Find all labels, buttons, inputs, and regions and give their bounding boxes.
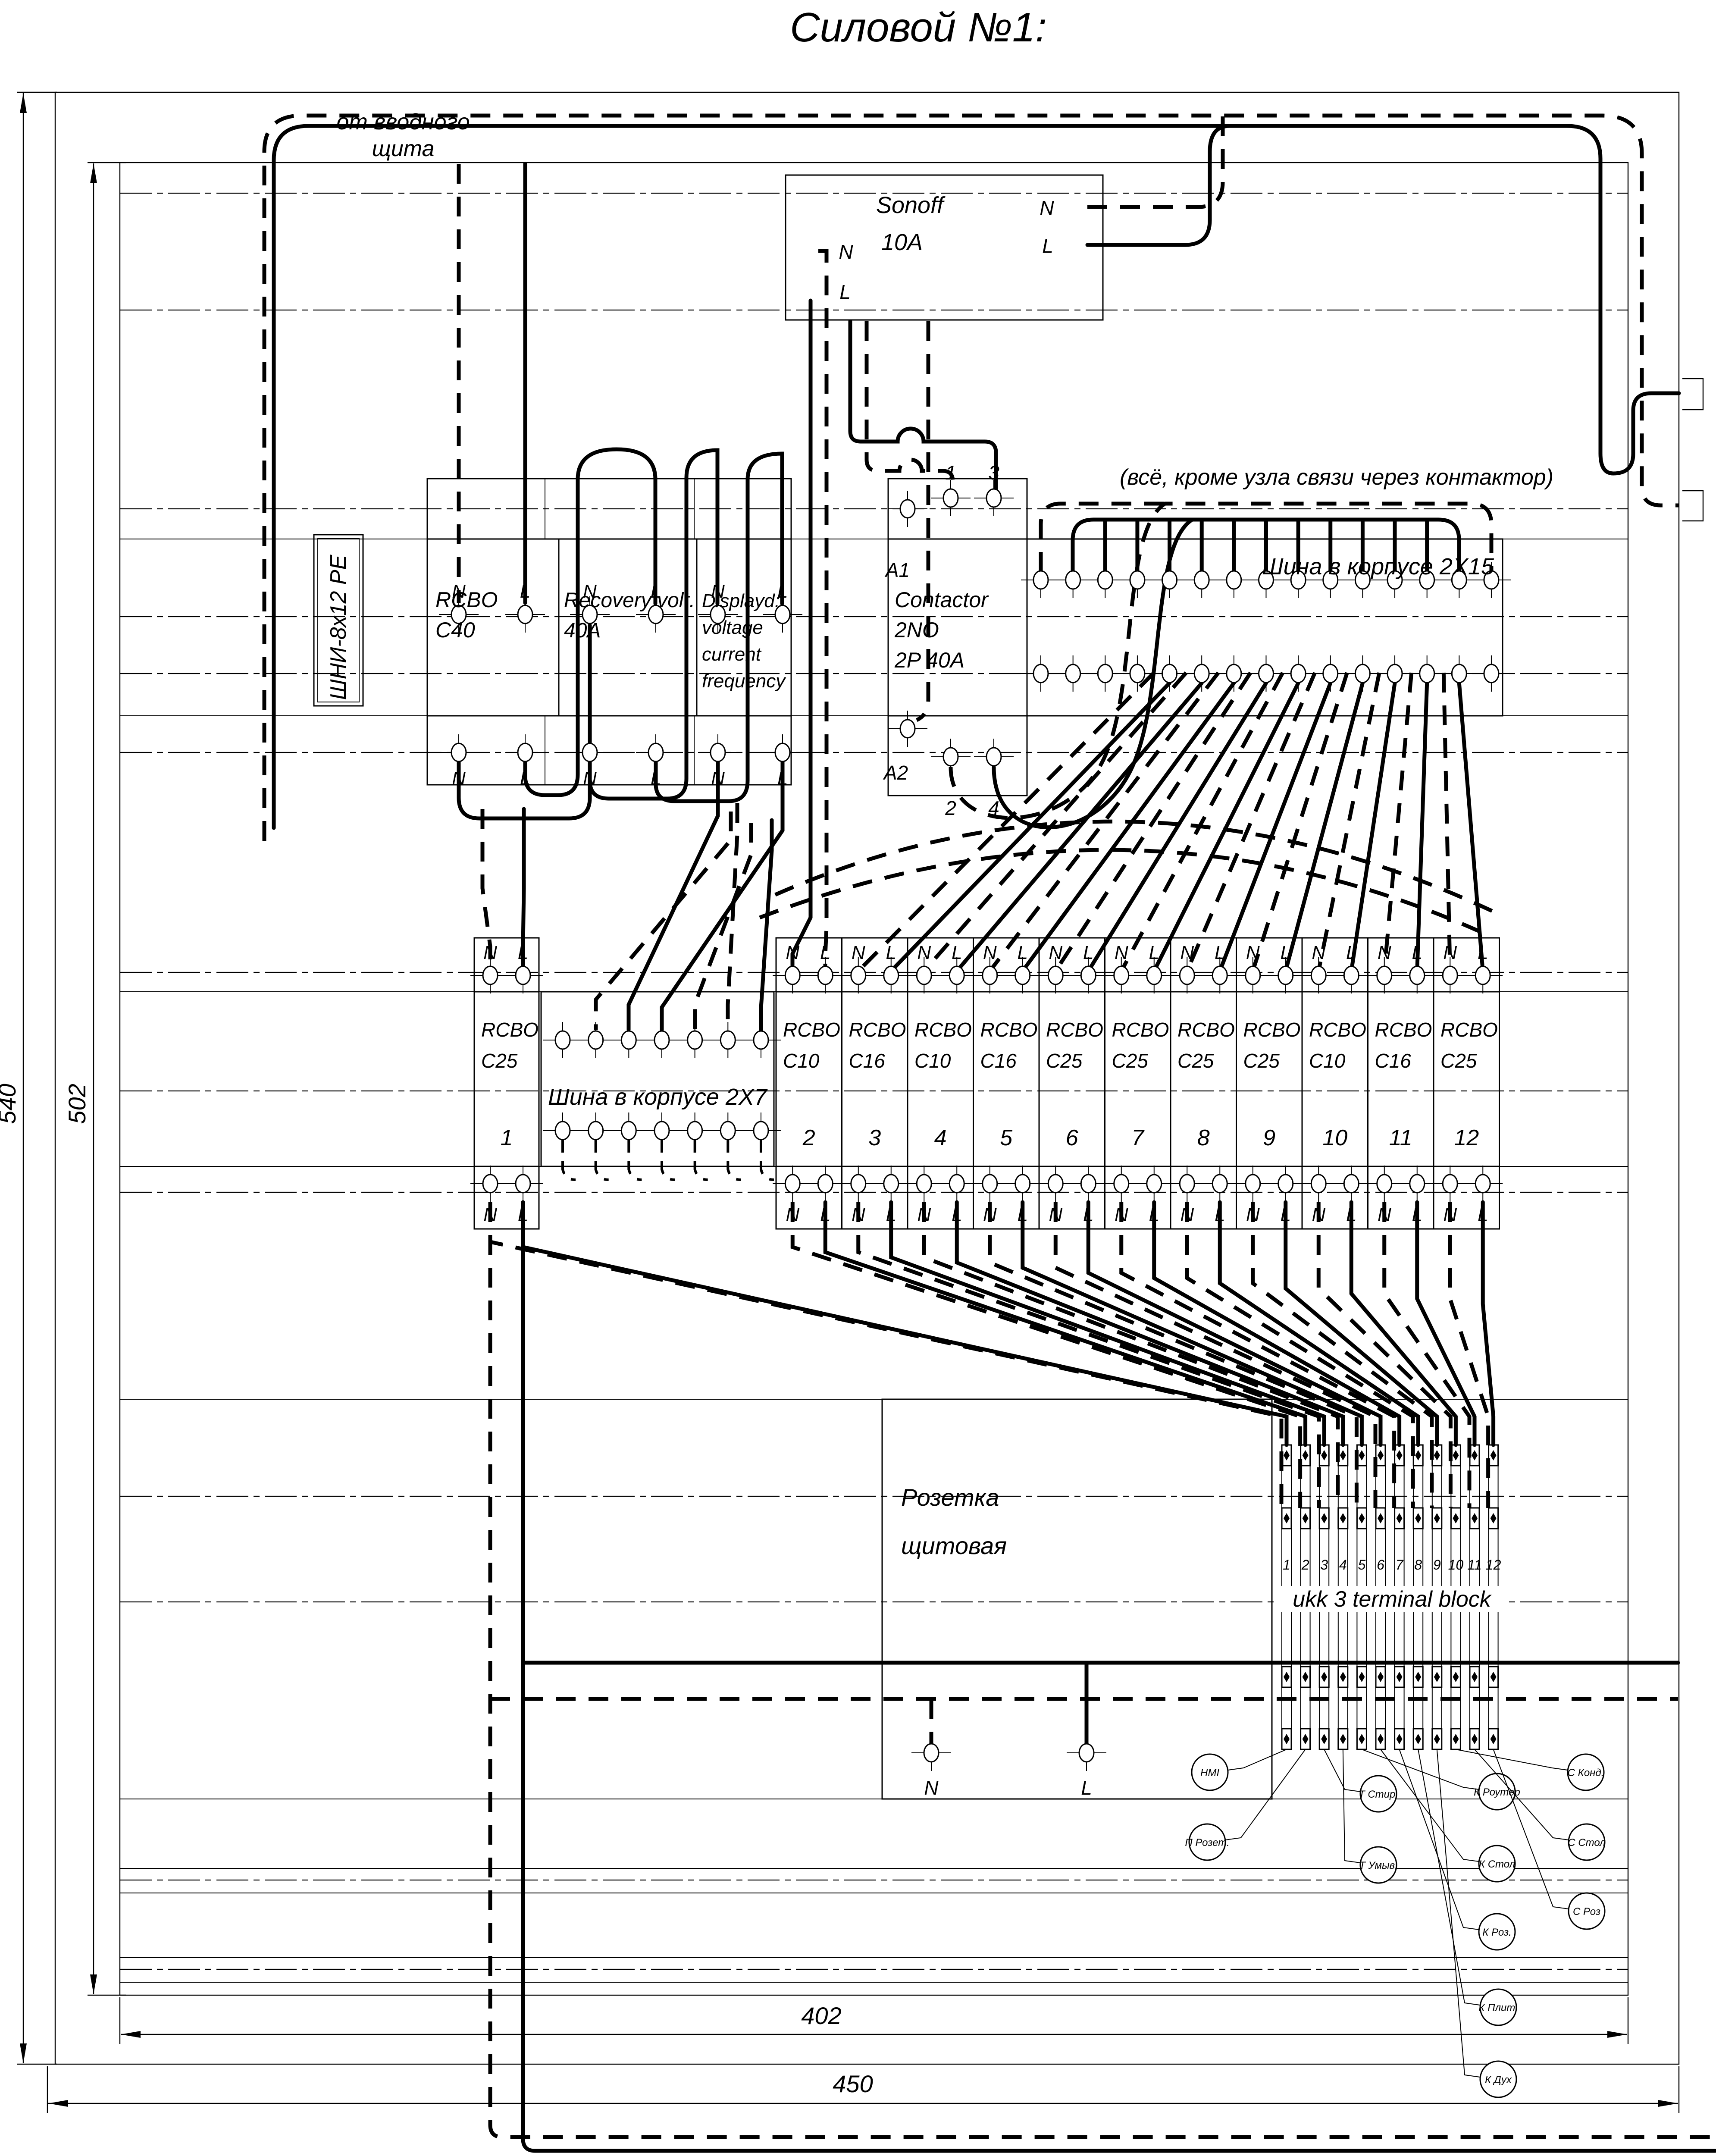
terminal-screw [983, 1175, 997, 1193]
terminal-diamond [1303, 1734, 1309, 1744]
breaker-terminal-letter: N [983, 942, 997, 963]
terminal-screw [986, 748, 1001, 766]
breaker-terminal-letter: N [483, 942, 497, 963]
terminal-screw [654, 1031, 669, 1049]
terminal-screw [917, 966, 931, 984]
breaker-terminal-letter: L [1281, 942, 1291, 963]
breaker-number: 2 [802, 1125, 815, 1150]
terminal-screw [1227, 571, 1241, 589]
contactor-line1: Contactor [895, 588, 989, 612]
terminal-screw [1410, 966, 1425, 984]
bus-2x15-label: Шина в корпусе 2X15 [1262, 554, 1494, 580]
circuit-tag-label: К Роутер [1474, 1786, 1520, 1798]
breaker-terminal-letter: N [1312, 942, 1325, 963]
breaker-rating-line1: RCBO [914, 1018, 972, 1041]
breaker-terminal-letter: N [786, 942, 799, 963]
socket-box-group [882, 1399, 1272, 1799]
circuit-tag-label: Т Стир. [1359, 1789, 1398, 1800]
terminal-diamond [1321, 1672, 1327, 1682]
breaker-rating-line2: C25 [1046, 1050, 1083, 1072]
breaker-terminal-letter: N [983, 1204, 997, 1225]
socket-label-1: Розетка [901, 1484, 999, 1511]
terminal-screw [555, 1031, 570, 1049]
ukk-number: 8 [1414, 1557, 1422, 1573]
terminal-diamond [1415, 1450, 1421, 1460]
terminal-diamond [1303, 1513, 1309, 1523]
breaker-terminal-letter: L [1346, 942, 1356, 963]
terminal-screw [775, 743, 790, 761]
terminal-diamond [1340, 1734, 1346, 1744]
circuit-tag-label: С Роз [1573, 1906, 1600, 1918]
terminal-screw [1278, 1175, 1293, 1193]
breaker-number: 9 [1263, 1125, 1275, 1150]
terminal-screw [654, 1122, 669, 1140]
breaker-terminal-letter: L [1412, 1204, 1422, 1225]
terminal-diamond [1378, 1513, 1384, 1523]
breaker-terminal-letter: L [820, 942, 830, 963]
terminal-screw [1355, 664, 1370, 683]
contactor-line3: 2P 40A [894, 648, 964, 672]
terminal-diamond [1284, 1734, 1290, 1744]
terminal-diamond [1303, 1450, 1309, 1460]
breaker-number: 8 [1197, 1125, 1210, 1150]
breaker-terminal-letter: L [952, 942, 962, 963]
terminal-screw [1344, 966, 1359, 984]
terminal-screw [1180, 966, 1194, 984]
terminal-diamond [1453, 1513, 1459, 1523]
ukk-number: 5 [1358, 1557, 1366, 1573]
socket-label-2: щитовая [901, 1532, 1007, 1559]
breaker-rating-line2: C16 [980, 1050, 1017, 1072]
breaker-terminal-letter: L [1281, 1204, 1291, 1225]
circuit-leader-line [1456, 1749, 1568, 1770]
breaker-terminal-letter: N [1246, 942, 1260, 963]
terminal-screw [1484, 664, 1499, 683]
recovery-line1: Recovery volt. [564, 589, 695, 612]
terminal-screw [1048, 966, 1063, 984]
terminal-screw [1377, 1175, 1392, 1193]
breaker-rating-line2: C25 [1440, 1050, 1477, 1072]
terminal-diamond [1491, 1513, 1497, 1523]
terminal-screw [943, 748, 958, 766]
contactor-4: 4 [988, 797, 999, 819]
terminal-screw [1443, 966, 1457, 984]
terminal-diamond [1434, 1672, 1440, 1682]
breaker-terminal-letter: N [1312, 1204, 1325, 1225]
socket-l: L [1081, 1777, 1092, 1799]
sonoff-n-left: N [839, 241, 853, 263]
terminal-diamond [1340, 1513, 1346, 1523]
row1-terminal-letter: N [583, 768, 597, 789]
terminal-screw [851, 1175, 866, 1193]
bus-2x7-label: Шина в корпусе 2X7 [548, 1084, 768, 1110]
terminal-diamond [1434, 1513, 1440, 1523]
wiring-diagram-svg: 540 502 402 450 [0, 0, 1716, 2156]
page-title: Силовой №1: [790, 4, 1047, 50]
terminal-diamond [1415, 1734, 1421, 1744]
breaker-rating-line2: C16 [1375, 1050, 1412, 1072]
sonoff-rating: 10A [881, 229, 923, 255]
breaker-terminal-letter: N [786, 1204, 799, 1225]
terminal-diamond [1491, 1672, 1497, 1682]
terminal-screw [1048, 1175, 1063, 1193]
breaker-terminal-letter: N [917, 942, 931, 963]
breaker-terminal-letter: L [1478, 1204, 1488, 1225]
terminal-diamond [1453, 1672, 1459, 1682]
circuit-leader-line [1324, 1749, 1360, 1792]
terminal-diamond [1472, 1672, 1478, 1682]
breaker-terminal-letter: L [1412, 942, 1422, 963]
contactor-note: (всё, кроме узла связи через контактор) [1120, 465, 1553, 490]
circuit-leader-line [1418, 1749, 1480, 2005]
circuit-tag-label: С Стол [1568, 1837, 1606, 1849]
sonoff-name: Sonoff [876, 192, 946, 218]
terminal-screw [516, 966, 530, 984]
terminal-screw [1015, 966, 1030, 984]
breaker-terminal-letter: L [886, 942, 896, 963]
row1-bottom-terminal-strip [427, 716, 791, 785]
breaker-rating-line1: RCBO [1046, 1018, 1103, 1041]
terminal-diamond [1434, 1734, 1440, 1744]
offsheet-connector-bracket [1682, 379, 1703, 410]
terminal-screw [1452, 664, 1466, 683]
breaker-terminal-letter: L [518, 1204, 528, 1225]
contactor-3: 3 [988, 461, 999, 484]
row1-terminal-letter: L [777, 768, 788, 789]
terminal-screw [451, 743, 466, 761]
terminal-screw [1147, 1175, 1162, 1193]
terminal-diamond [1491, 1450, 1497, 1460]
terminal-screw [1130, 571, 1145, 589]
terminal-screw [621, 1031, 636, 1049]
terminal-screw [483, 1175, 498, 1193]
terminal-screw [917, 1175, 931, 1193]
circuit-tag-label: С Конд. [1568, 1767, 1604, 1779]
breaker-terminal-letter: N [483, 1204, 497, 1225]
ukk-number: 7 [1396, 1557, 1404, 1573]
breaker-number: 12 [1454, 1125, 1479, 1150]
wire-bottom-run-l [523, 1202, 1715, 2151]
terminal-diamond [1415, 1513, 1421, 1523]
terminal-screw [582, 743, 597, 761]
display-line1: Displayd: [702, 590, 780, 611]
terminal-screw [983, 966, 997, 984]
terminal-screw [900, 720, 915, 738]
breaker-rating-line1: RCBO [1440, 1018, 1498, 1041]
breaker-rating-line2: C25 [1112, 1050, 1149, 1072]
circuit-leader-line [1343, 1749, 1360, 1863]
terminal-screw [555, 1122, 570, 1140]
dim-height-outer: 540 [0, 1084, 21, 1124]
breaker-terminal-letter: N [852, 1204, 865, 1225]
breaker-rating-line1: RCBO [1112, 1018, 1169, 1041]
terminal-diamond [1397, 1450, 1403, 1460]
terminal-screw [1114, 966, 1129, 984]
socket-box [882, 1399, 1272, 1799]
circuit-tag-label: HMI [1200, 1767, 1219, 1779]
terminals [439, 480, 1511, 1771]
bus-2x7-body [541, 992, 774, 1166]
dim-height-inner: 502 [63, 1084, 91, 1124]
terminal-diamond [1321, 1513, 1327, 1523]
ukk-number: 11 [1467, 1557, 1481, 1573]
terminal-diamond [1397, 1513, 1403, 1523]
terminal-screw [1114, 1175, 1129, 1193]
ukk-number: 6 [1377, 1557, 1384, 1573]
terminal-screw [518, 605, 532, 624]
breaker-rating-line1: RCBO [1309, 1018, 1366, 1041]
static-text: Силовой №1: от вводного щита Sonoff 10A … [326, 4, 1553, 1799]
circuit-leader-line [1494, 1749, 1569, 1909]
terminal-screw [720, 1122, 735, 1140]
terminal-screw [1098, 664, 1112, 683]
contactor-2: 2 [945, 797, 956, 819]
terminal-screw [648, 743, 663, 761]
terminal-screw [1194, 571, 1209, 589]
terminal-diamond [1284, 1513, 1290, 1523]
breaker-terminal-letter: L [1149, 1204, 1159, 1225]
breaker-terminal-letter: N [1246, 1204, 1260, 1225]
breaker-terminal-letter: N [1180, 942, 1194, 963]
breaker-number: 10 [1322, 1125, 1347, 1150]
breaker-terminal-letter: L [1215, 942, 1225, 963]
terminal-screw [1278, 966, 1293, 984]
circuit-tag-label: К Плит. [1478, 2002, 1518, 2014]
breaker-terminal-letter: L [1478, 942, 1488, 963]
terminal-screw [1475, 966, 1490, 984]
breaker-number: 4 [934, 1125, 947, 1150]
ukk-label: ukk 3 terminal block [1293, 1587, 1492, 1612]
terminal-diamond [1321, 1450, 1327, 1460]
terminal-diamond [1378, 1734, 1384, 1744]
terminal-screw [688, 1031, 702, 1049]
terminal-screw [818, 1175, 833, 1193]
breaker-number: 1 [501, 1125, 513, 1150]
terminal-screw [1212, 966, 1227, 984]
breaker-rating-line1: RCBO [481, 1018, 539, 1041]
rcbo-c40-line2: C40 [435, 618, 475, 642]
breaker-rating-line1: RCBO [1243, 1018, 1301, 1041]
terminal-screw [516, 1175, 530, 1193]
terminal-screw [1344, 1175, 1359, 1193]
terminal-screw [900, 500, 915, 518]
sonoff-n-right: N [1040, 197, 1054, 219]
breaker-terminal-letter: N [1443, 942, 1457, 963]
wire-contactor-out-n [951, 504, 1491, 818]
terminal-screw [1420, 664, 1434, 683]
contactor-line2: 2NO [894, 618, 939, 642]
rcbo-c40-line1: RCBO [435, 588, 498, 612]
terminal-screw [943, 489, 958, 507]
terminal-diamond [1472, 1450, 1478, 1460]
dim-width-outer: 450 [833, 2070, 873, 2097]
terminal-diamond [1472, 1513, 1478, 1523]
terminal-screw [1081, 966, 1096, 984]
breaker-rating-line2: C16 [849, 1050, 886, 1072]
breaker-terminal-letter: N [1115, 942, 1128, 963]
offsheet-connector-bracket [1682, 491, 1703, 521]
breaker-terminal-letter: L [1018, 942, 1028, 963]
schematic-sheet: 540 502 402 450 [0, 0, 1716, 2156]
terminal-diamond [1340, 1672, 1346, 1682]
terminal-diamond [1397, 1672, 1403, 1682]
terminal-screw [1212, 1175, 1227, 1193]
sonoff-box [786, 175, 1103, 320]
terminal-diamond [1359, 1450, 1365, 1460]
breaker-terminal-letter: N [1443, 1204, 1457, 1225]
terminal-diamond [1321, 1734, 1327, 1744]
breaker-number: 6 [1066, 1125, 1078, 1150]
terminal-diamond [1434, 1450, 1440, 1460]
terminal-screw [949, 966, 964, 984]
terminal-diamond [1284, 1672, 1290, 1682]
breaker-terminal-letter: N [1049, 942, 1062, 963]
breaker-number: 3 [868, 1125, 881, 1150]
terminal-screw [1387, 664, 1402, 683]
ukk-number: 4 [1339, 1557, 1347, 1573]
terminal-screw [851, 966, 866, 984]
display-line2: voltage [702, 617, 763, 638]
shni-pe-label: ШНИ-8х12 PE [326, 554, 351, 700]
terminal-diamond [1340, 1450, 1346, 1460]
breaker-terminal-letter: L [1346, 1204, 1356, 1225]
breaker-terminal-letter: N [852, 942, 865, 963]
ukk-number: 10 [1448, 1557, 1464, 1573]
terminal-screw [688, 1122, 702, 1140]
circuit-tag-label: К Стол [1479, 1858, 1516, 1870]
breaker-rating-line1: RCBO [1375, 1018, 1432, 1041]
breaker-rating-line1: RCBO [980, 1018, 1038, 1041]
breaker-terminal-letter: N [917, 1204, 931, 1225]
terminal-screw [1194, 664, 1209, 683]
circuit-leader-line [1381, 1749, 1479, 1861]
terminal-screw [1130, 664, 1145, 683]
terminal-screw [986, 489, 1001, 507]
terminal-screw [1323, 664, 1338, 683]
breaker-terminal-letter: L [952, 1204, 962, 1225]
breaker-number: 11 [1389, 1125, 1412, 1150]
terminal-screw [924, 1744, 939, 1762]
breaker-rating-line2: C25 [1177, 1050, 1214, 1072]
display-line3: current [702, 644, 762, 665]
inner-frame [120, 163, 1628, 1995]
ukk-number: 9 [1433, 1557, 1441, 1573]
breaker-terminal-letter: L [1215, 1204, 1225, 1225]
terminal-screw [1098, 571, 1112, 589]
terminal-diamond [1472, 1734, 1478, 1744]
breaker-rating-line2: C25 [481, 1050, 518, 1072]
breaker-terminal-letter: N [1378, 942, 1391, 963]
recovery-line2: 40A [564, 619, 601, 642]
terminal-screw [1475, 1175, 1490, 1193]
terminal-diamond [1378, 1672, 1384, 1682]
terminal-screw [1291, 664, 1306, 683]
terminal-screw [818, 966, 833, 984]
terminal-screw [1066, 571, 1080, 589]
row1-terminal-letter: L [520, 768, 530, 789]
ukk-number: 12 [1486, 1557, 1501, 1573]
circuit-leader-line [1228, 1749, 1287, 1770]
breaker-rating-line2: C25 [1243, 1050, 1280, 1072]
contactor-1: 1 [945, 461, 956, 484]
breaker-terminal-letter: N [1180, 1204, 1194, 1225]
terminal-diamond [1303, 1672, 1309, 1682]
terminal-diamond [1284, 1450, 1290, 1460]
terminal-screw [785, 966, 800, 984]
terminal-screw [1033, 571, 1048, 589]
circuit-leader-line [1225, 1749, 1306, 1840]
sonoff-l-right: L [1042, 235, 1053, 257]
dimensions: 540 502 402 450 [0, 92, 1679, 2113]
circuit-tag-label: К Дух [1485, 2074, 1512, 2086]
circuit-tag-label: К Роз. [1482, 1927, 1511, 1938]
terminal-screw [1180, 1175, 1194, 1193]
terminal-diamond [1359, 1734, 1365, 1744]
from-input-panel-label-2: щита [372, 136, 435, 161]
breaker-terminal-letter: L [886, 1204, 896, 1225]
terminal-screw [1443, 1175, 1457, 1193]
wire-bottom-run-n [490, 1202, 1715, 2137]
breaker-rating-line2: C10 [914, 1050, 951, 1072]
terminal-screw [1227, 664, 1241, 683]
row1-terminal-letter: N [711, 768, 725, 789]
ukk-number: 3 [1320, 1557, 1328, 1573]
row1-terminal-letter: L [651, 768, 661, 789]
terminal-screw [518, 743, 532, 761]
breaker-number: 5 [1000, 1125, 1013, 1150]
terminal-screw [1311, 966, 1326, 984]
terminal-screw [785, 1175, 800, 1193]
terminal-diamond [1491, 1734, 1497, 1744]
terminal-screw [884, 1175, 899, 1193]
socket-n: N [924, 1777, 939, 1799]
terminal-screw [754, 1122, 768, 1140]
terminal-screw [1246, 1175, 1260, 1193]
display-line4: frequency [702, 671, 786, 692]
terminal-screw [1066, 664, 1080, 683]
terminal-screw [884, 966, 899, 984]
terminal-screw [483, 966, 498, 984]
breaker-rating-line1: RCBO [1177, 1018, 1235, 1041]
ukk-number: 1 [1283, 1557, 1290, 1573]
terminal-screw [621, 1122, 636, 1140]
circuit-tag-label: П Розет. [1185, 1837, 1229, 1849]
terminal-screw [1079, 1744, 1094, 1762]
contactor-a2: A2 [883, 761, 908, 784]
breaker-terminal-letter: N [1378, 1204, 1391, 1225]
din-rail-lines [120, 193, 1628, 1982]
terminal-screw [949, 1175, 964, 1193]
terminal-screw [1081, 1175, 1096, 1193]
terminal-screw [1377, 966, 1392, 984]
breaker-terminal-letter: L [1083, 1204, 1093, 1225]
breaker-terminal-letter: L [518, 942, 528, 963]
circuit-tag-label: Т Умыв. [1359, 1860, 1398, 1871]
terminal-screw [1246, 966, 1260, 984]
terminal-diamond [1378, 1450, 1384, 1460]
breaker-terminal-letter: N [1115, 1204, 1128, 1225]
circuit-tags: HMIП Розет.Т Стир.Т Умыв.К РоутерК СтолК… [1185, 1749, 1606, 2097]
breaker-number: 7 [1131, 1125, 1145, 1150]
terminal-screw [1033, 664, 1048, 683]
contactor-a1: A1 [884, 559, 910, 581]
row1-terminal-letter: L [520, 581, 530, 602]
terminal-screw [1162, 664, 1177, 683]
ukk-number: 2 [1301, 1557, 1309, 1573]
sonoff-l-left: L [839, 281, 851, 303]
terminal-screw [1410, 1175, 1425, 1193]
breaker-terminal-letter: N [1049, 1204, 1062, 1225]
